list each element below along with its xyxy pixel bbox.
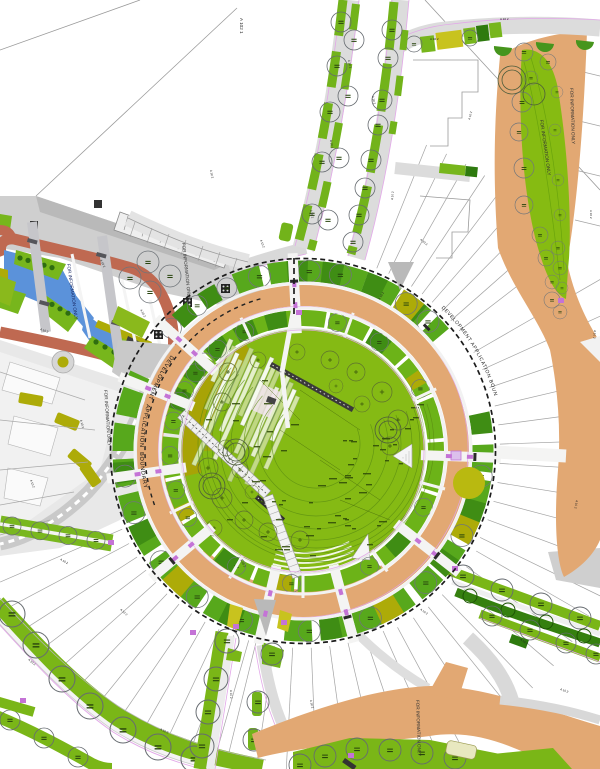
svg-text:A 102 1: A 102 1 (239, 18, 244, 34)
svg-text:A 10 2: A 10 2 (592, 330, 597, 339)
svg-text:A 10 2: A 10 2 (430, 37, 439, 41)
svg-text:A 10 2: A 10 2 (589, 210, 593, 219)
svg-text:A 10 2: A 10 2 (500, 17, 509, 21)
svg-text:A 10 2: A 10 2 (390, 191, 395, 200)
svg-text:A 10 2: A 10 2 (229, 690, 233, 699)
